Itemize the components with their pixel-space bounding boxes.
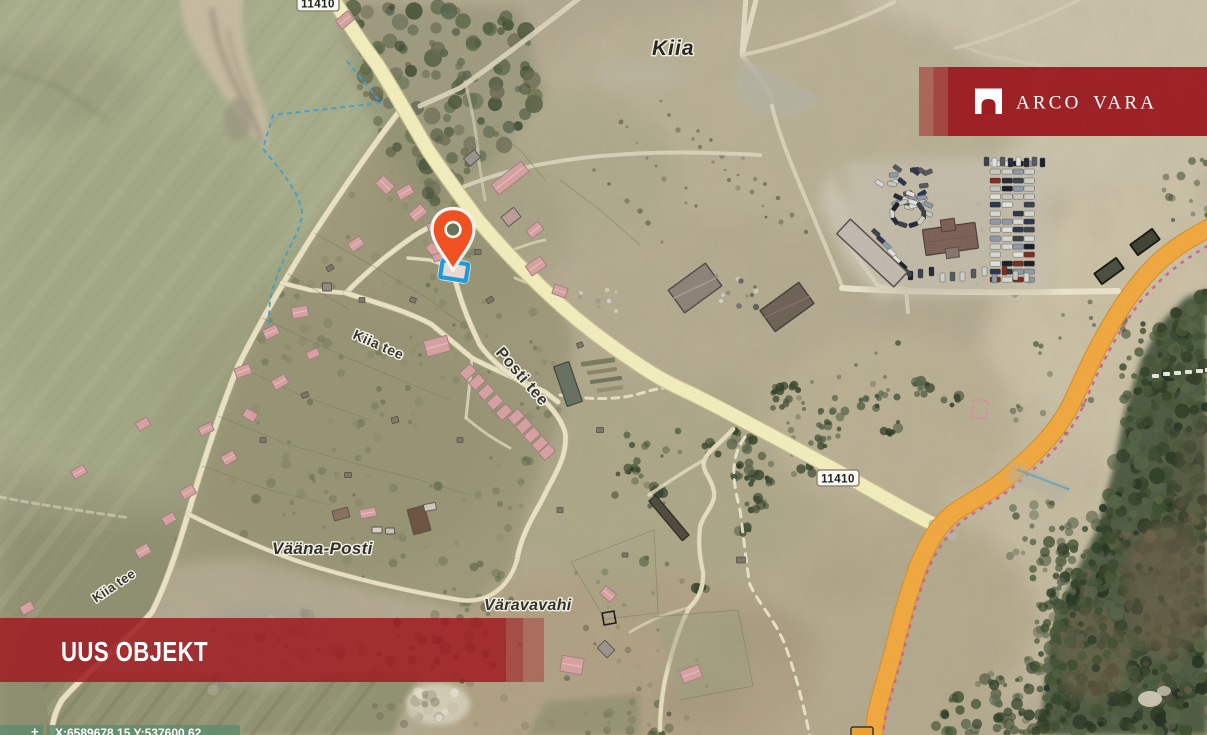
svg-text:UUS OBJEKT: UUS OBJEKT [61,636,208,667]
svg-text:X:6589678.15 Y:537600.62: X:6589678.15 Y:537600.62 [55,726,202,735]
svg-text:ARCO VARA: ARCO VARA [1016,93,1157,114]
svg-text:+: + [31,724,39,735]
